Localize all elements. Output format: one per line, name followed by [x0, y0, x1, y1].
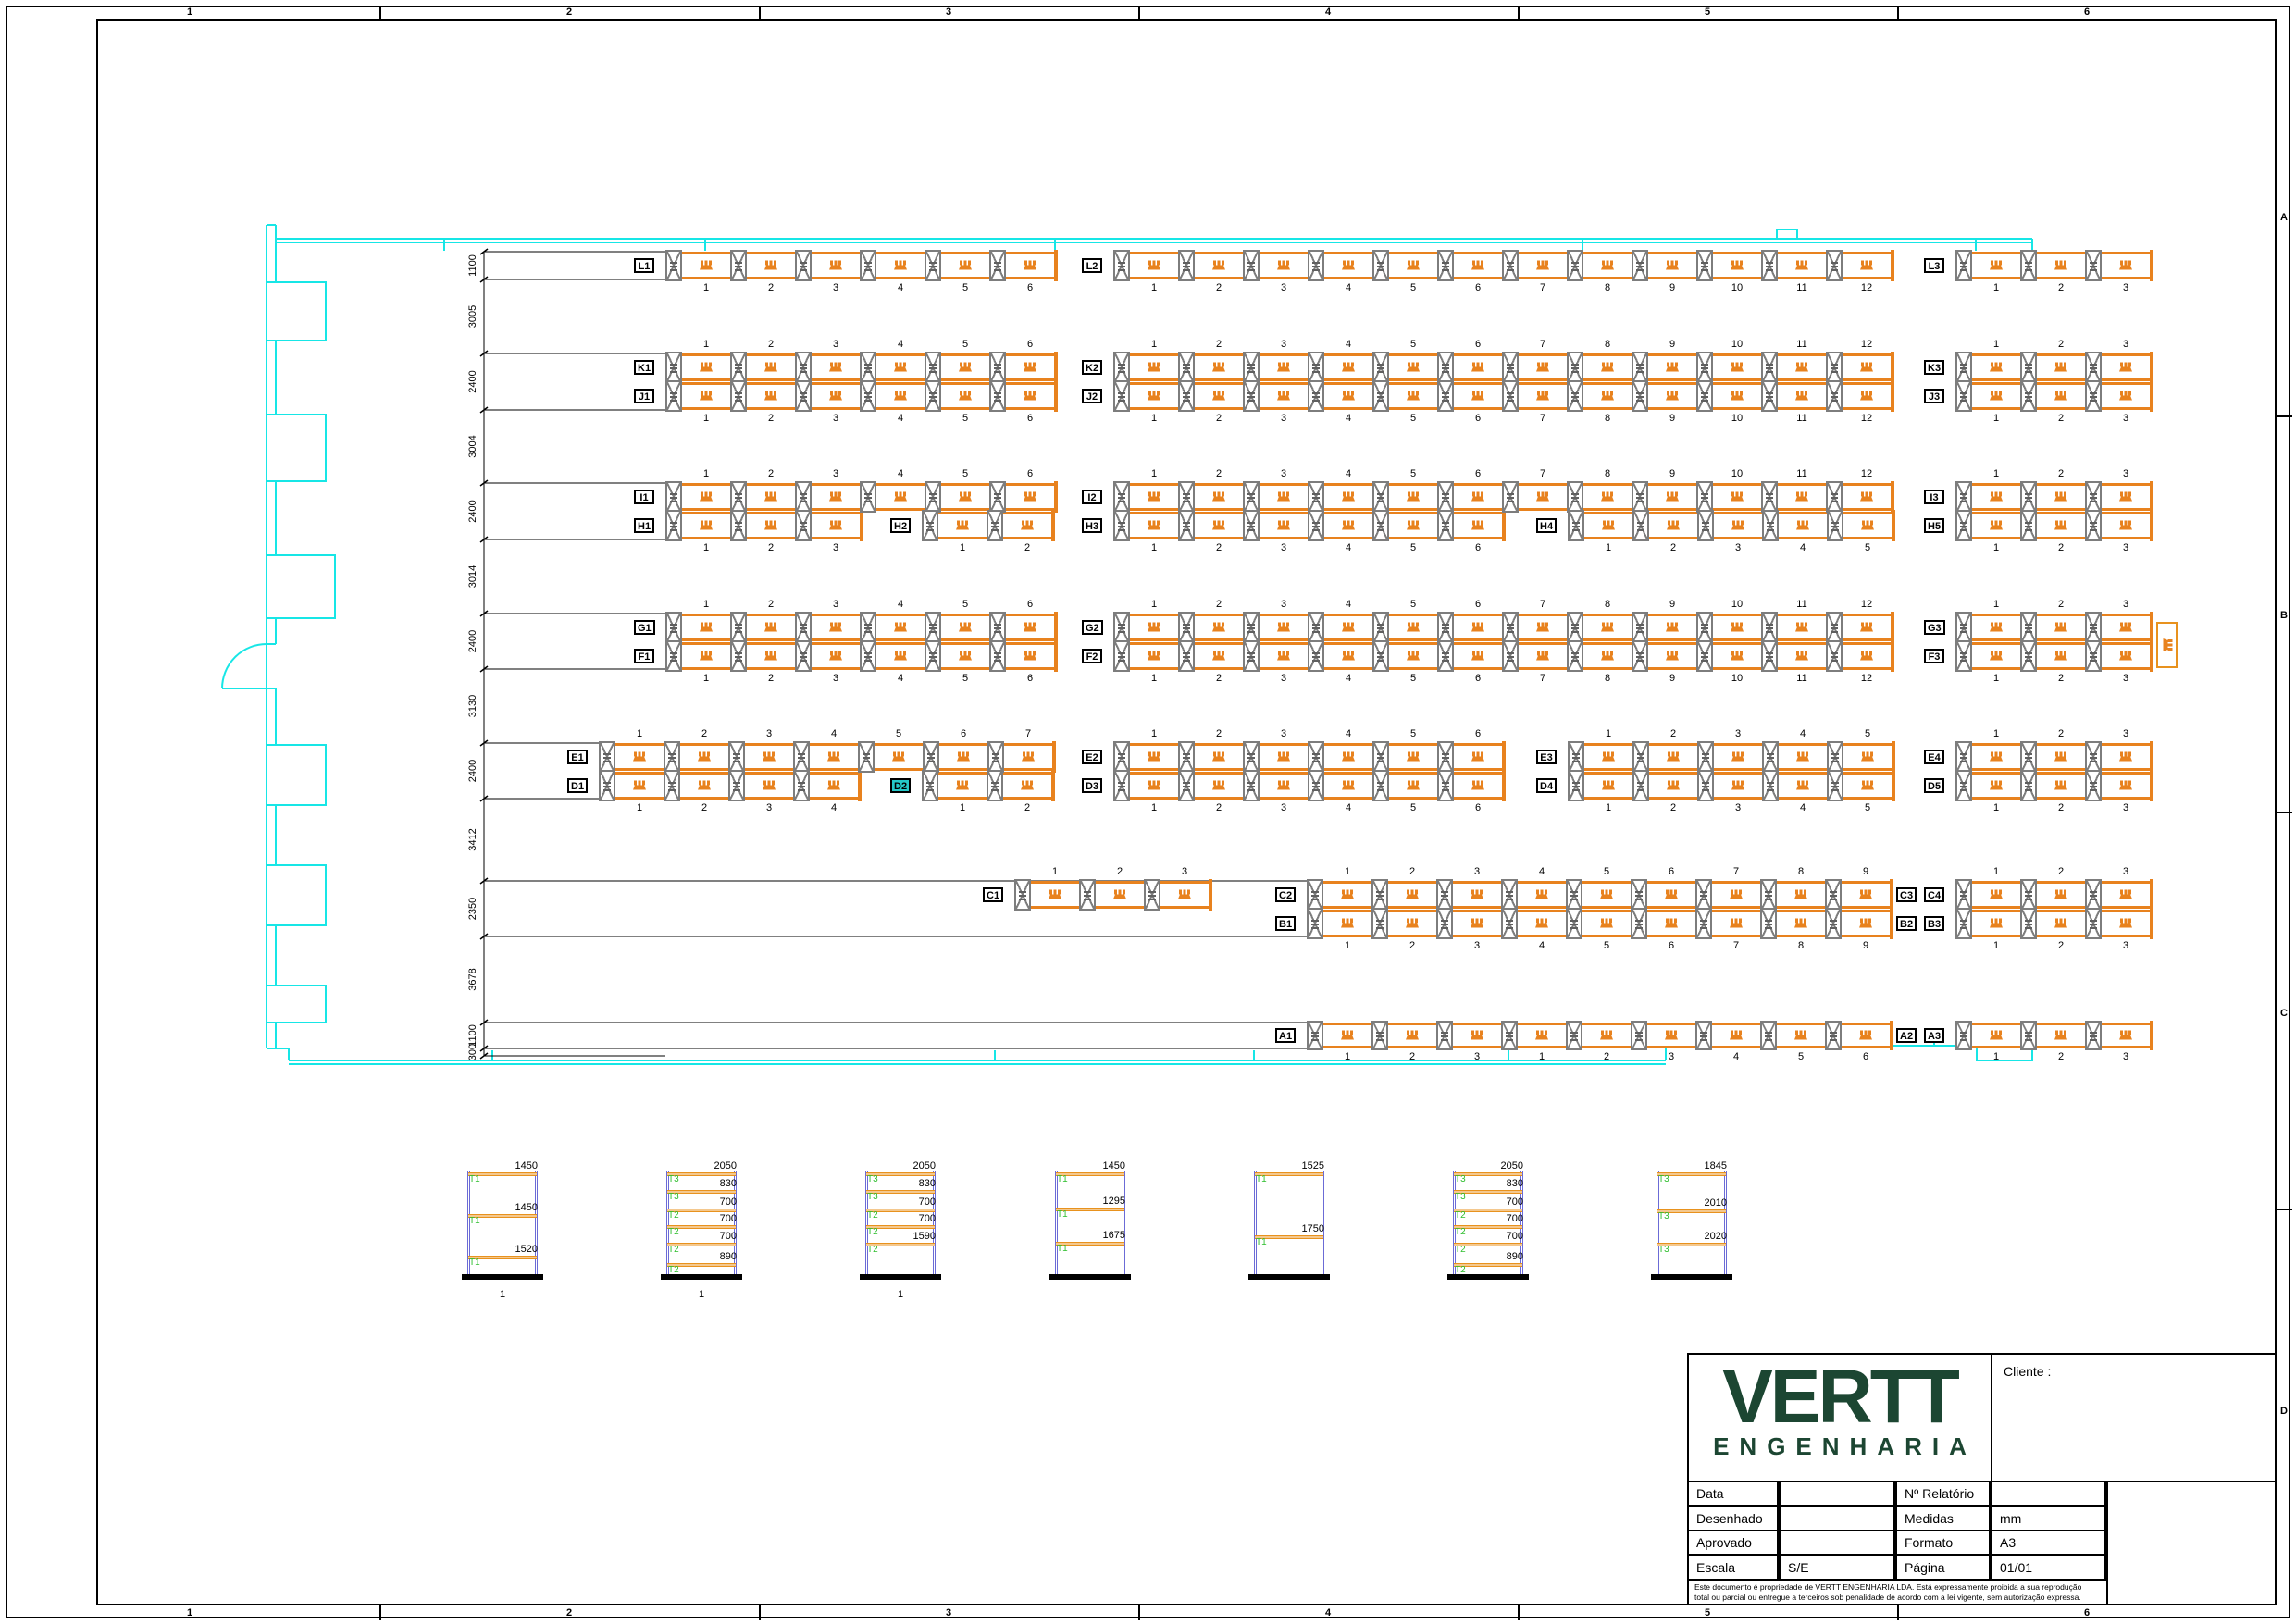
rack-upright-icon	[1760, 879, 1777, 911]
rack-bay	[747, 614, 795, 641]
rack-bay	[2037, 353, 2085, 381]
pallet-icon	[1860, 261, 1873, 271]
rack-bay	[1454, 614, 1502, 641]
bay-number: 7	[1532, 673, 1554, 684]
bay-number: 3	[2115, 599, 2137, 610]
rack-upright-icon	[2020, 380, 2037, 412]
rack-row-label-L2[interactable]: L2	[1082, 258, 1102, 273]
rack-row-label-I3[interactable]: I3	[1924, 490, 1944, 504]
rack-upright-icon	[1243, 380, 1260, 412]
pallet-icon	[1990, 781, 2003, 791]
rack-row-H3	[1113, 512, 1506, 539]
rack-bay	[939, 743, 987, 771]
bay-number: 3	[1272, 282, 1295, 293]
rack-row-label-H2[interactable]: H2	[890, 518, 911, 533]
rack-bay	[2037, 1023, 2085, 1048]
profile-beam-type: T2	[867, 1245, 878, 1255]
bay-number: 5	[1402, 413, 1424, 424]
rack-bay	[682, 483, 730, 511]
rack-upright-icon	[1826, 352, 1843, 383]
rack-row-A2-A3	[1955, 1023, 2153, 1048]
rack-bay	[1003, 772, 1051, 800]
pallet-icon	[700, 651, 713, 662]
rack-bay	[1323, 910, 1371, 937]
rack-row-label-C3[interactable]: C3	[1896, 887, 1917, 902]
rack-row-label-J1[interactable]: J1	[634, 389, 654, 403]
rack-upright-icon	[1826, 250, 1843, 281]
pallet-icon	[1407, 752, 1420, 762]
rack-row-B2-B3	[1955, 910, 2153, 937]
bay-number: 3	[758, 802, 780, 813]
bay-number: 6	[1467, 413, 1489, 424]
rack-bay	[1389, 252, 1437, 279]
rack-row-label-D5[interactable]: D5	[1924, 778, 1944, 793]
rack-upright-icon	[1955, 481, 1972, 513]
rack-row-label-I2[interactable]: I2	[1082, 490, 1102, 504]
rack-end-post	[860, 510, 863, 541]
bay-number: 5	[887, 728, 910, 739]
rack-end-post	[1890, 1021, 1893, 1050]
pallet-icon	[1666, 363, 1679, 373]
bay-number: 4	[889, 468, 912, 479]
pallet-icon	[1021, 781, 1034, 791]
pallet-icon	[700, 261, 713, 271]
rack-upright-icon	[1308, 481, 1324, 513]
pallet-icon	[1731, 391, 1744, 402]
bay-number: 2	[1208, 468, 1230, 479]
rack-bay	[1260, 353, 1308, 381]
pallet-icon	[1602, 781, 1615, 791]
rack-upright-icon	[1696, 352, 1713, 383]
rack-upright-icon	[1760, 908, 1777, 939]
rack-upright-icon	[1568, 770, 1584, 801]
bay-number: 5	[1790, 1051, 1812, 1062]
rack-upright-icon	[2085, 510, 2102, 541]
bay-number: 8	[1596, 673, 1619, 684]
rack-row-label-D1[interactable]: D1	[567, 778, 588, 793]
rack-row-label-H3[interactable]: H3	[1082, 518, 1102, 533]
profile-level-height: 700	[720, 1196, 737, 1208]
profile-beam-type: T1	[1256, 1174, 1267, 1184]
rack-upright-icon	[1696, 380, 1713, 412]
bay-number: 7	[1725, 866, 1747, 877]
rack-upright-icon	[1178, 770, 1195, 801]
rack-upright-icon	[1826, 612, 1843, 643]
bay-number: 5	[1402, 599, 1424, 610]
profile-beam-type: T1	[1057, 1244, 1068, 1254]
pallet-icon	[1148, 651, 1160, 662]
bay-number: 10	[1726, 282, 1748, 293]
rack-upright-icon	[1308, 352, 1324, 383]
rack-row-I1	[665, 483, 1058, 511]
pallet-icon	[1277, 521, 1290, 531]
bay-number: 4	[889, 413, 912, 424]
rack-row-label-D2[interactable]: D2	[890, 778, 911, 793]
pallet-icon	[1407, 261, 1420, 271]
rack-row-label-D4[interactable]: D4	[1536, 778, 1557, 793]
bay-number: 1	[695, 673, 717, 684]
bay-number: 2	[2050, 542, 2072, 553]
rack-end-post	[1502, 770, 1506, 801]
pallet-icon	[1021, 521, 1034, 531]
rack-end-box	[2156, 622, 2178, 668]
rack-bay	[747, 382, 795, 410]
bay-number: 2	[1016, 542, 1038, 553]
rack-upright-icon	[1436, 908, 1453, 939]
bay-number: 1	[1985, 940, 2007, 951]
rack-end-post	[1890, 908, 1893, 939]
pallet-icon	[700, 521, 713, 531]
rack-upright-icon	[2020, 481, 2037, 513]
pallet-icon	[959, 623, 972, 633]
pallet-icon	[1794, 1031, 1807, 1041]
pallet-icon	[894, 363, 907, 373]
rack-bay	[1324, 252, 1372, 279]
pallet-icon	[1796, 521, 1809, 531]
rack-row-label-H4[interactable]: H4	[1536, 518, 1557, 533]
rack-bay	[1584, 743, 1632, 771]
pallet-icon	[2054, 492, 2067, 502]
rack-row-label-F3[interactable]: F3	[1924, 649, 1944, 663]
profile-beam-type: T3	[1455, 1192, 1466, 1202]
rack-end-post	[1891, 640, 1894, 672]
rack-row-label-H1[interactable]: H1	[634, 518, 654, 533]
pallet-icon	[2119, 1031, 2132, 1041]
rack-bay	[1389, 512, 1437, 539]
rack-row-label-G1[interactable]: G1	[634, 620, 655, 635]
rack-row-K3	[1955, 353, 2153, 381]
bay-number: 9	[1661, 673, 1683, 684]
pallet-icon	[2119, 752, 2132, 762]
bay-number: 2	[1662, 728, 1684, 739]
bay-number: 2	[1595, 1051, 1618, 1062]
rack-bay	[812, 483, 860, 511]
bay-number: 6	[1467, 339, 1489, 350]
profile-beam-type: T1	[1256, 1237, 1267, 1247]
rack-bay	[1583, 382, 1632, 410]
rack-row-label-G3[interactable]: G3	[1924, 620, 1945, 635]
rack-end-post	[1054, 380, 1058, 412]
rack-upright-icon	[1113, 612, 1130, 643]
rack-row-H1	[665, 512, 863, 539]
bay-number: 9	[1661, 599, 1683, 610]
bay-number: 1	[1044, 866, 1066, 877]
rack-row-J3	[1955, 382, 2153, 410]
rack-bay	[1778, 483, 1826, 511]
profile-post-right	[535, 1171, 538, 1276]
rack-row-label-A1[interactable]: A1	[1275, 1028, 1296, 1043]
rack-end-post	[1891, 481, 1894, 513]
profile-base	[1049, 1274, 1131, 1280]
rack-bay	[1453, 881, 1501, 909]
pallet-icon	[1601, 261, 1614, 271]
rack-bay	[1096, 881, 1144, 909]
rack-bay	[1843, 642, 1891, 670]
rack-row-label-C4[interactable]: C4	[1924, 887, 1944, 902]
bay-number: 1	[628, 802, 651, 813]
rack-profile-4: 1450T11295T11675T1	[1055, 1171, 1125, 1300]
bay-number: 3	[758, 728, 780, 739]
rack-bay	[1130, 353, 1178, 381]
rack-upright-icon	[1631, 908, 1647, 939]
rack-bay	[1972, 881, 2020, 909]
rack-bay	[1777, 881, 1825, 909]
bay-number: 4	[1725, 1051, 1747, 1062]
profile-base	[1248, 1274, 1330, 1280]
rack-row-label-K1[interactable]: K1	[634, 360, 654, 375]
rack-upright-icon	[1568, 741, 1584, 773]
rack-row-label-J2[interactable]: J2	[1082, 389, 1102, 403]
bay-number: 2	[1208, 542, 1230, 553]
pallet-icon	[894, 492, 907, 502]
bay-number: 1	[1985, 1051, 2007, 1062]
rack-upright-icon	[2020, 1021, 2037, 1050]
rack-bay	[1648, 382, 1696, 410]
rack-bay	[1649, 512, 1697, 539]
rack-bay	[1519, 353, 1567, 381]
pallet-icon	[1024, 363, 1036, 373]
pallet-icon	[1601, 651, 1614, 662]
bay-number: 2	[2050, 339, 2072, 350]
pallet-icon	[1212, 363, 1225, 373]
rack-row-label-B3[interactable]: B3	[1924, 916, 1944, 931]
pallet-icon	[1113, 890, 1126, 900]
rack-upright-icon	[2020, 908, 2037, 939]
rack-row-label-F1[interactable]: F1	[634, 649, 654, 663]
rack-upright-icon	[989, 640, 1006, 672]
bay-number: 3	[825, 542, 847, 553]
rack-upright-icon	[1632, 510, 1649, 541]
bay-number: 5	[954, 599, 976, 610]
bay-number: 3	[825, 468, 847, 479]
pallet-icon	[827, 781, 840, 791]
rack-upright-icon	[1632, 741, 1649, 773]
rack-bay	[1972, 512, 2020, 539]
rack-upright-icon	[2085, 380, 2102, 412]
rack-row-label-E2[interactable]: E2	[1082, 750, 1102, 764]
rack-bay	[1004, 743, 1052, 771]
bay-number: 5	[1856, 728, 1879, 739]
pallet-icon	[1730, 1031, 1743, 1041]
rack-end-post	[1054, 352, 1058, 383]
rack-row-E4	[1955, 743, 2153, 771]
pallet-icon	[1342, 781, 1355, 791]
bay-number: 6	[1467, 802, 1489, 813]
rack-end-post	[2150, 612, 2153, 643]
rack-bay	[1647, 881, 1695, 909]
pallet-icon	[1342, 623, 1355, 633]
rack-row-L3	[1955, 252, 2153, 279]
rack-upright-icon	[860, 481, 876, 513]
pallet-icon	[2054, 363, 2067, 373]
rack-bay	[876, 642, 925, 670]
rack-upright-icon	[2020, 770, 2037, 801]
rack-bay	[1777, 910, 1825, 937]
pallet-icon	[1795, 492, 1808, 502]
profile-level-height: 700	[720, 1231, 737, 1242]
rack-upright-icon	[1307, 879, 1323, 911]
pallet-icon	[1860, 492, 1873, 502]
rack-bay	[1648, 614, 1696, 641]
bay-number: 1	[1143, 339, 1165, 350]
pallet-icon	[698, 781, 711, 791]
rack-upright-icon	[795, 640, 812, 672]
rack-row-H5	[1955, 512, 2153, 539]
rack-row-K1	[665, 353, 1058, 381]
pallet-icon	[764, 391, 777, 402]
rack-bay	[1003, 512, 1051, 539]
rack-bay	[2037, 743, 2085, 771]
rack-bay	[682, 642, 730, 670]
rack-row-label-L1[interactable]: L1	[634, 258, 654, 273]
profile-level-height: 700	[1507, 1196, 1523, 1208]
rack-row-label-E1[interactable]: E1	[567, 750, 588, 764]
bay-number: 3	[1272, 413, 1295, 424]
bay-number: 8	[1596, 282, 1619, 293]
rack-bay	[747, 353, 795, 381]
rack-upright-icon	[1243, 640, 1260, 672]
rack-bay	[1519, 642, 1567, 670]
profile-post-left	[1657, 1171, 1659, 1276]
rack-bay	[2102, 353, 2150, 381]
pallet-icon	[1731, 492, 1744, 502]
pallet-icon	[1342, 521, 1355, 531]
rack-upright-icon	[1695, 908, 1712, 939]
rack-row-label-K2[interactable]: K2	[1082, 360, 1102, 375]
pallet-icon	[1600, 890, 1613, 900]
rack-upright-icon	[1178, 380, 1195, 412]
rack-bay	[1130, 772, 1178, 800]
rack-bay	[1842, 881, 1890, 909]
pallet-icon	[1536, 623, 1549, 633]
pallet-icon	[1990, 1031, 2003, 1041]
rack-row-label-C1[interactable]: C1	[983, 887, 1003, 902]
rack-row-label-K3[interactable]: K3	[1924, 360, 1944, 375]
rack-bay	[1713, 382, 1761, 410]
pallet-icon	[2054, 919, 2067, 929]
rack-row-label-A3[interactable]: A3	[1924, 1028, 1944, 1043]
pallet-icon	[1536, 391, 1549, 402]
pallet-icon	[1860, 651, 1873, 662]
rack-bay	[747, 642, 795, 670]
rack-row-label-E4[interactable]: E4	[1924, 750, 1944, 764]
bay-number: 3	[1272, 468, 1295, 479]
pallet-icon	[829, 521, 842, 531]
rack-row-label-L3[interactable]: L3	[1924, 258, 1944, 273]
pallet-icon	[1212, 391, 1225, 402]
bay-number: 3	[825, 339, 847, 350]
rack-upright-icon	[1372, 770, 1389, 801]
rack-row-label-B1[interactable]: B1	[1275, 916, 1296, 931]
profile-level-height: 700	[1507, 1231, 1523, 1242]
bay-number: 6	[1467, 673, 1489, 684]
rack-upright-icon	[1632, 640, 1648, 672]
rack-row-label-F2[interactable]: F2	[1082, 649, 1102, 663]
rack-bay	[1195, 743, 1243, 771]
rack-bay	[1260, 743, 1308, 771]
rack-upright-icon	[2020, 879, 2037, 911]
pallet-icon	[1341, 919, 1354, 929]
rack-row-label-B2[interactable]: B2	[1896, 916, 1917, 931]
rack-bay	[1713, 483, 1761, 511]
bay-number: 6	[1467, 542, 1489, 553]
pallet-icon	[1794, 890, 1807, 900]
rack-bay	[1972, 483, 2020, 511]
profile-post-right	[1724, 1171, 1727, 1276]
pallet-icon	[1666, 651, 1679, 662]
pallet-icon	[1860, 623, 1873, 633]
profile-beam-type: T2	[668, 1210, 679, 1221]
pallet-icon	[894, 391, 907, 402]
rack-row-label-A2[interactable]: A2	[1896, 1028, 1917, 1043]
bay-number: 3	[825, 413, 847, 424]
bay-number: 9	[1661, 413, 1683, 424]
rack-upright-icon	[730, 640, 747, 672]
rack-upright-icon	[1502, 250, 1519, 281]
pallet-icon	[1406, 890, 1419, 900]
bay-number: 4	[1337, 599, 1359, 610]
pallet-icon	[1536, 492, 1549, 502]
bay-number: 6	[1467, 282, 1489, 293]
rack-row-D4	[1568, 772, 1895, 800]
rack-upright-icon	[1695, 879, 1712, 911]
rack-bay	[1972, 642, 2020, 670]
rack-upright-icon	[860, 250, 876, 281]
plan-area: L1123456L2123456789101112L3123K1123456K2…	[0, 0, 2296, 1624]
rack-bay	[1584, 512, 1632, 539]
rack-row-label-H5[interactable]: H5	[1924, 518, 1944, 533]
rack-upright-icon	[989, 481, 1006, 513]
rack-upright-icon	[1178, 352, 1195, 383]
rack-upright-icon	[795, 380, 812, 412]
rack-upright-icon	[1307, 1021, 1323, 1050]
rack-upright-icon	[1697, 510, 1714, 541]
bay-number: 3	[2115, 468, 2137, 479]
pallet-icon	[1667, 781, 1680, 791]
pallet-icon	[1212, 781, 1225, 791]
bay-number: 3	[2115, 673, 2137, 684]
rack-bay	[1519, 382, 1567, 410]
bay-number: 4	[1531, 866, 1553, 877]
rack-row-label-I1[interactable]: I1	[634, 490, 654, 504]
bay-number: 1	[695, 339, 717, 350]
rack-end-post	[1892, 510, 1895, 541]
pallet-icon	[1990, 919, 2003, 929]
rack-bay	[1778, 353, 1826, 381]
bay-number: 2	[2050, 599, 2072, 610]
rack-row-label-D3[interactable]: D3	[1082, 778, 1102, 793]
pallet-icon	[1407, 521, 1420, 531]
pallet-icon	[763, 752, 776, 762]
rack-row-D1	[599, 772, 862, 800]
rack-bay	[1779, 772, 1827, 800]
bay-number: 4	[823, 728, 845, 739]
rack-upright-icon	[1308, 250, 1324, 281]
pallet-icon	[1471, 521, 1484, 531]
rack-row-label-C2[interactable]: C2	[1275, 887, 1296, 902]
pallet-icon	[829, 391, 842, 402]
rack-row-label-E3[interactable]: E3	[1536, 750, 1557, 764]
rack-bay	[1778, 382, 1826, 410]
rack-upright-icon	[1568, 510, 1584, 541]
profile-post-left	[1055, 1171, 1058, 1276]
rack-bay	[1582, 1023, 1631, 1048]
bay-number: 1	[1143, 728, 1165, 739]
bay-number: 7	[1532, 599, 1554, 610]
rack-upright-icon	[1502, 640, 1519, 672]
rack-row-label-J3[interactable]: J3	[1924, 389, 1944, 403]
rack-row-label-G2[interactable]: G2	[1082, 620, 1103, 635]
